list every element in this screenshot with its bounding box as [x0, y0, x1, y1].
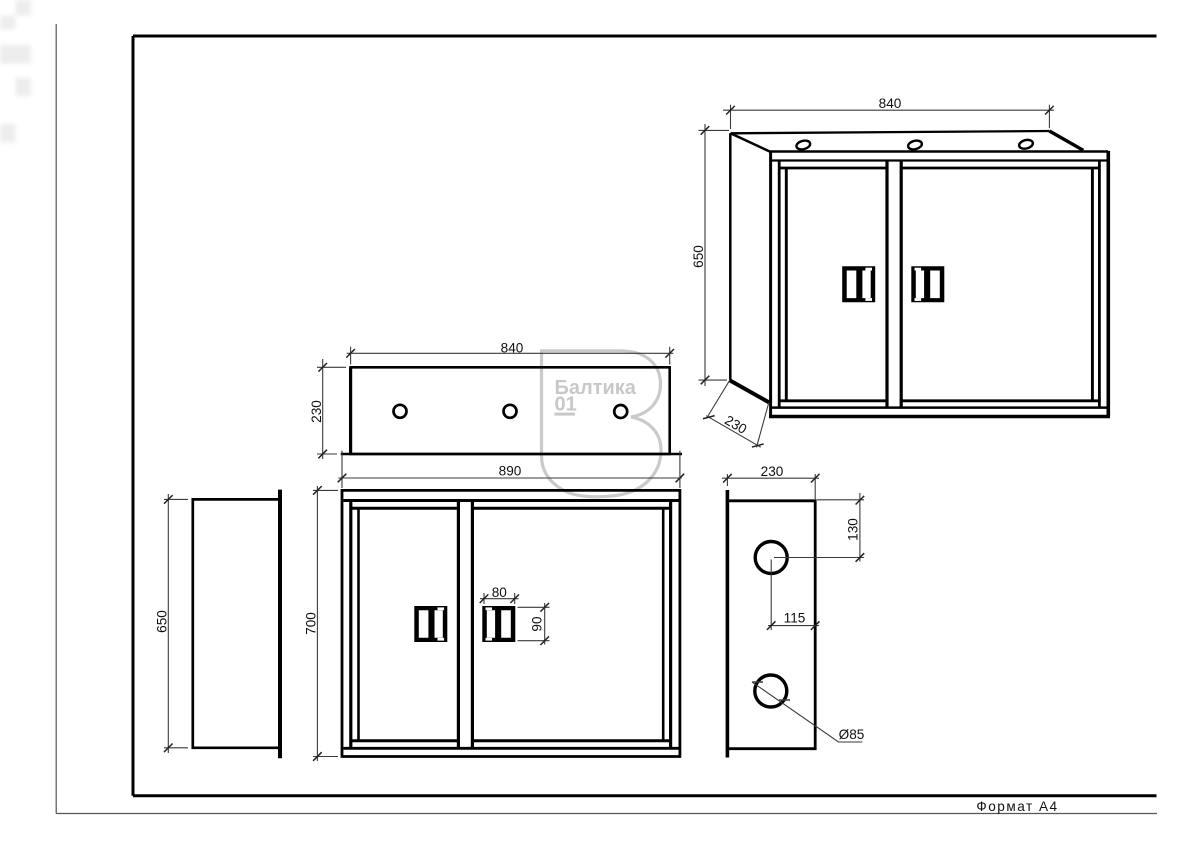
- svg-text:130: 130: [846, 518, 861, 541]
- svg-text:90: 90: [530, 616, 545, 632]
- svg-text:01: 01: [555, 394, 577, 416]
- svg-text:650: 650: [155, 610, 170, 633]
- svg-text:Формат А4: Формат А4: [976, 799, 1058, 814]
- svg-text:890: 890: [499, 463, 522, 478]
- svg-text:700: 700: [304, 612, 319, 635]
- svg-text:115: 115: [784, 611, 806, 626]
- svg-text:230: 230: [722, 413, 750, 438]
- svg-text:650: 650: [691, 245, 706, 268]
- svg-text:230: 230: [309, 400, 324, 423]
- svg-text:80: 80: [492, 585, 508, 600]
- svg-text:230: 230: [761, 464, 784, 479]
- svg-text:840: 840: [879, 96, 902, 111]
- svg-text:Ø85: Ø85: [839, 727, 865, 742]
- svg-text:840: 840: [501, 340, 524, 355]
